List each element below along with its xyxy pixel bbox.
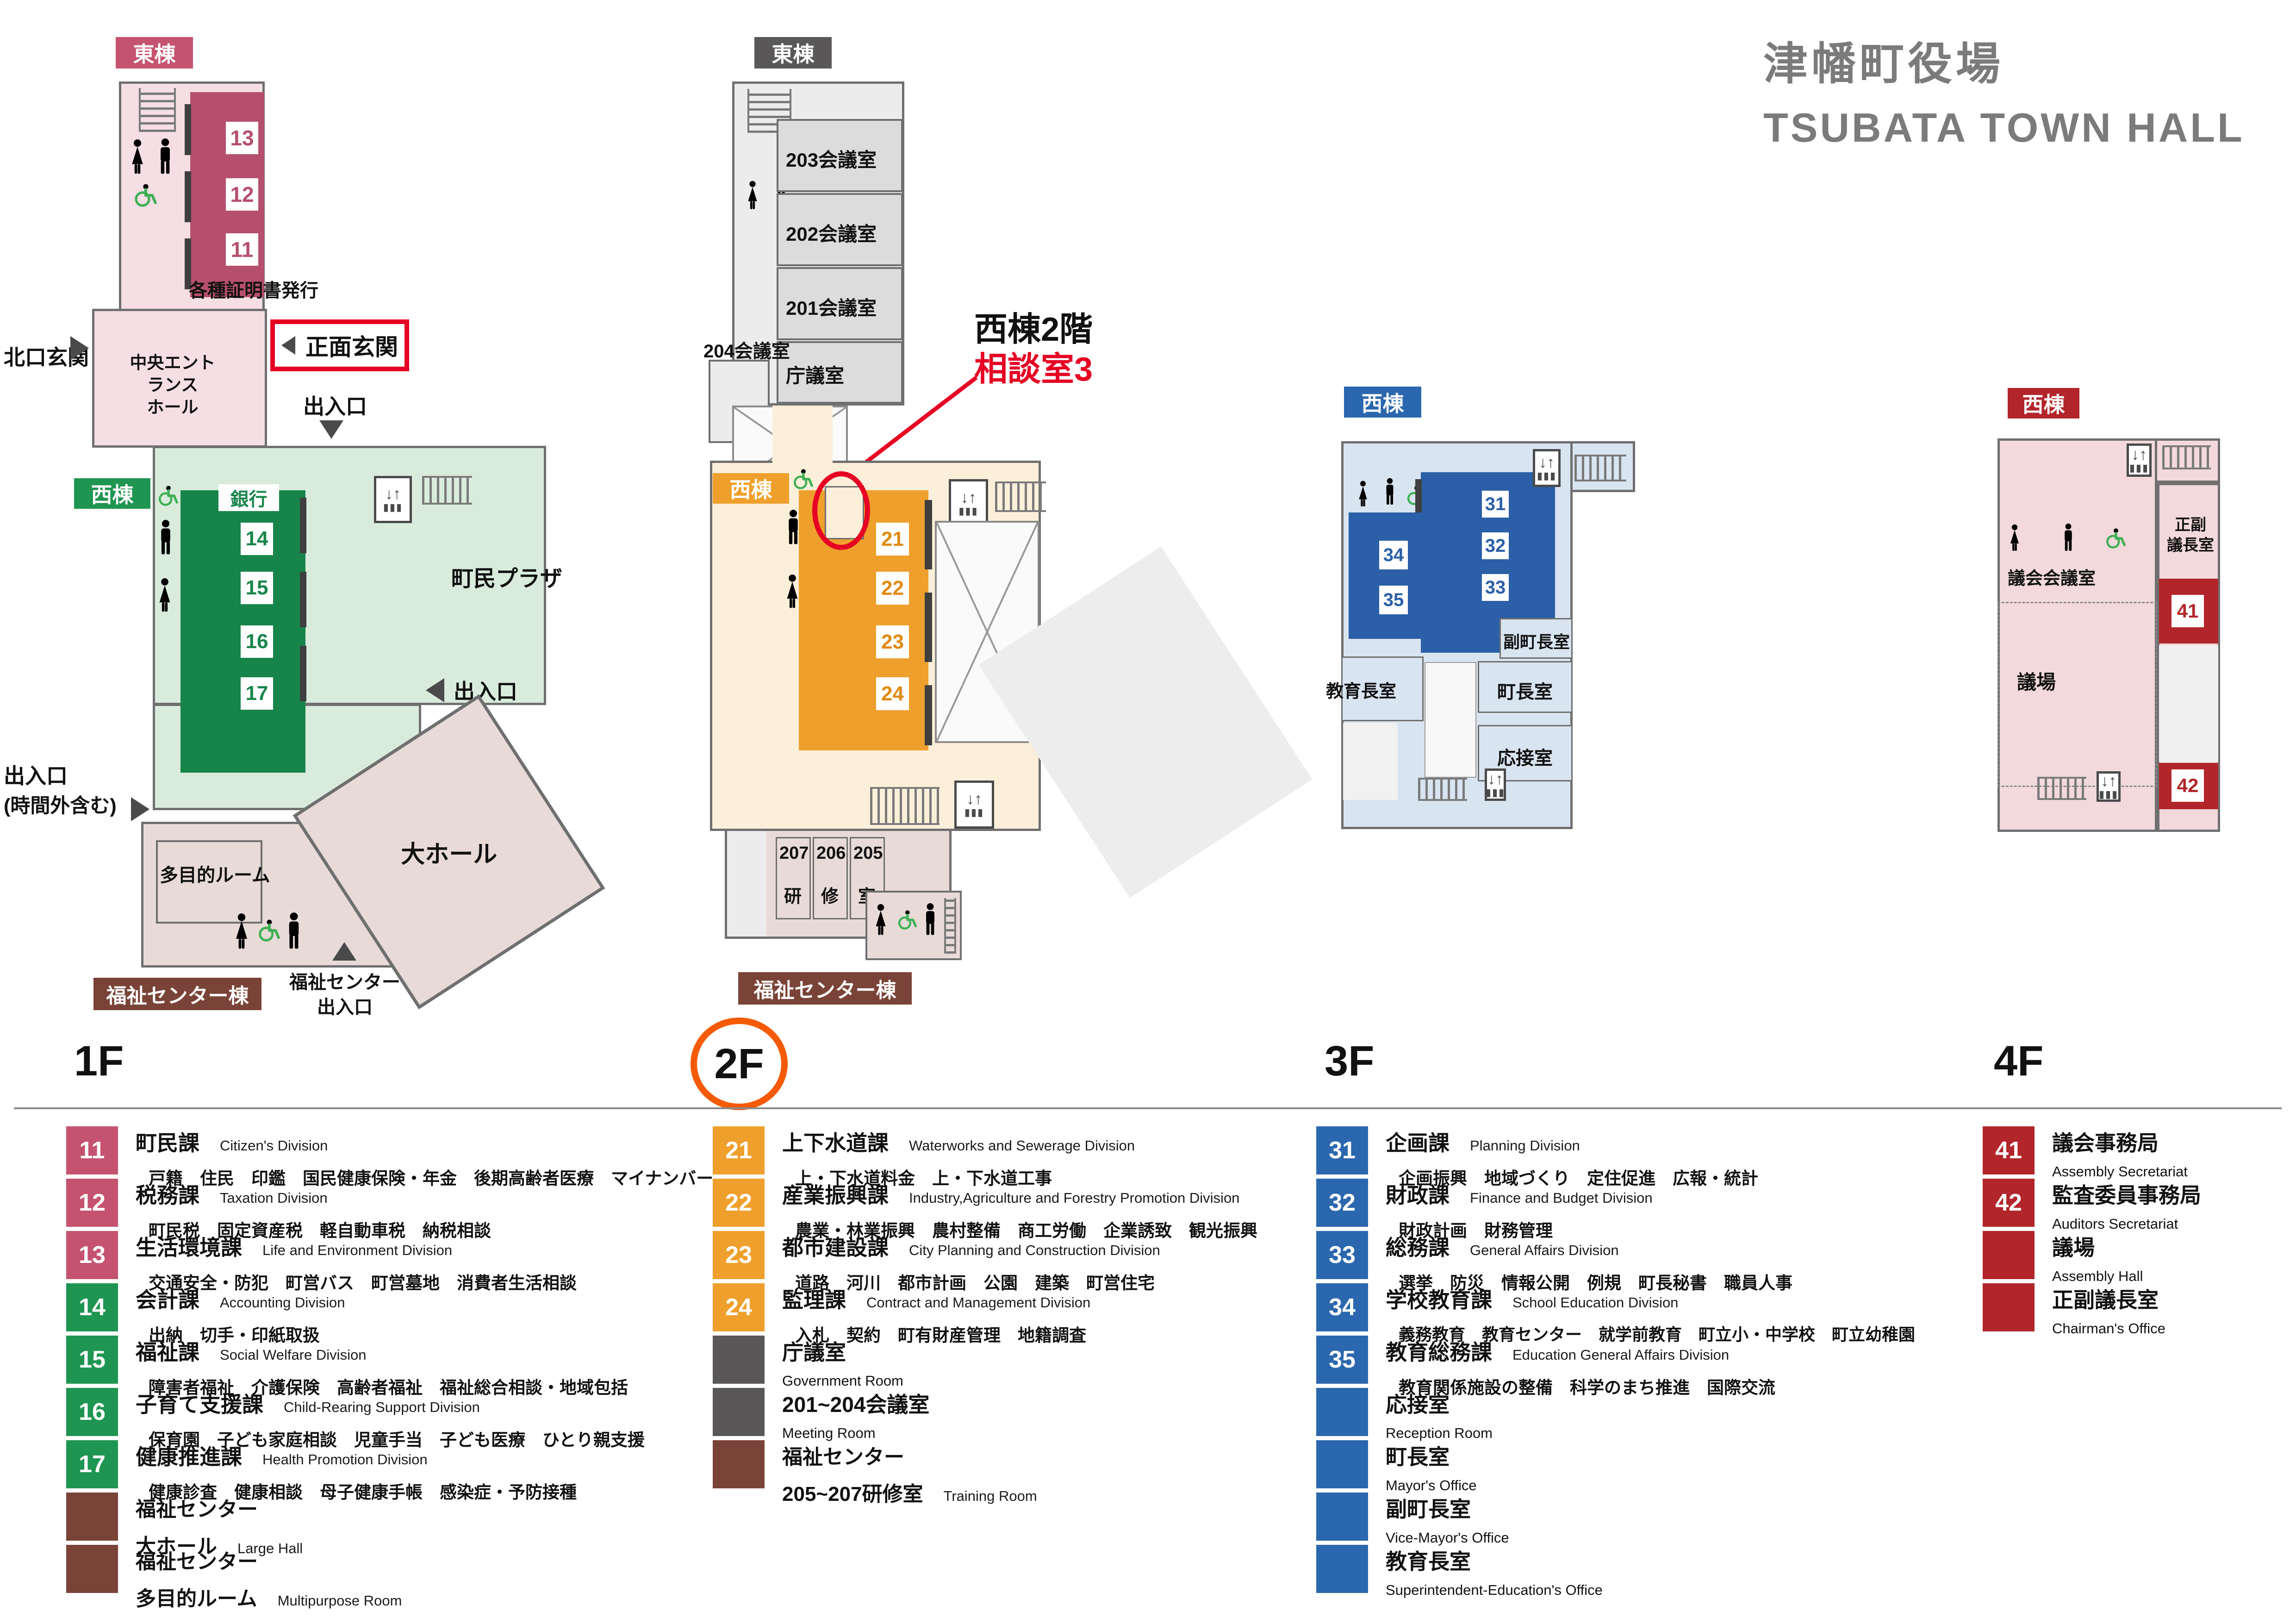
room-chip-21: 21 <box>876 523 909 556</box>
stairs-icon <box>139 88 176 132</box>
floor-map-1f: 東棟 13 12 11 各種証明書発行 北口玄関 正面玄関 中央エントランスホー… <box>0 28 648 1046</box>
government-room-label: 庁議室 <box>786 360 844 388</box>
exit-top-arrow-icon <box>319 420 343 439</box>
legend-chip-32: 32 <box>1316 1179 1368 1227</box>
legend-chip-assembly-hall <box>1983 1231 2035 1279</box>
certificates-label: 各種証明書発行 <box>189 275 318 302</box>
division-office-block-left-3f <box>1349 512 1441 639</box>
badge-west-wing-3f: 西棟 <box>1344 387 1421 418</box>
woman-icon <box>157 578 172 613</box>
stairs-icon <box>1418 778 1467 801</box>
room-chip-32: 32 <box>1482 532 1509 559</box>
floor-label-2f: 2F <box>714 1040 764 1088</box>
title-japanese: 津幡町役場 <box>1763 28 2245 92</box>
room-chip-31: 31 <box>1482 491 1509 518</box>
badge-welfare-center-1f: 福祉センター棟 <box>93 978 261 1010</box>
legend-chip-14: 14 <box>66 1283 118 1331</box>
room-chip-16: 16 <box>241 625 273 658</box>
exit-right-arrow-icon <box>426 678 444 702</box>
woman-icon <box>2009 524 2021 552</box>
reception-room-label: 応接室 <box>1497 743 1553 770</box>
superintendent-office-label: 教育長室 <box>1326 677 1396 702</box>
legend-chip-vice-mayor <box>1316 1493 1368 1541</box>
room-chip-23: 23 <box>876 625 909 658</box>
meeting-room-204-label: 204会議室 <box>703 336 790 363</box>
stairs-icon <box>422 476 472 505</box>
assembly-hall-label: 議場 <box>2017 667 2056 695</box>
main-entrance-arrow-icon <box>281 336 295 355</box>
legend-chip-12: 12 <box>66 1179 118 1227</box>
floor-label-4f: 4F <box>1994 1037 2043 1086</box>
welfare-entrance-label: 福祉センター出入口 <box>287 970 403 1020</box>
room-chip-35: 35 <box>1379 586 1408 614</box>
room-chip-11: 11 <box>226 233 258 266</box>
meeting-room-201-label: 201会議室 <box>786 293 877 321</box>
room-chip-22: 22 <box>876 572 909 605</box>
stairs-icon <box>995 481 1046 512</box>
legend-chip-welfare-multi <box>66 1545 118 1593</box>
bank-label: 銀行 <box>218 484 279 511</box>
man-icon <box>786 509 801 545</box>
woman-icon <box>130 139 145 175</box>
stairs-icon <box>870 787 940 825</box>
title-english: TSUBATA TOWN HALL <box>1763 104 2245 151</box>
badge-welfare-center-2f: 福祉センター棟 <box>738 972 912 1005</box>
legend-chip-23: 23 <box>713 1231 765 1279</box>
wheelchair-icon <box>2105 528 2126 549</box>
meeting-room-203-label: 203会議室 <box>786 144 877 173</box>
legend-divider <box>14 1107 2282 1109</box>
exit-right-label: 出入口 <box>454 675 517 706</box>
main-entrance-box: 正面玄関 <box>270 319 409 371</box>
elevator-icon <box>2127 443 2152 477</box>
exit-afterhours-label: 出入口(時間外含む) <box>4 759 117 818</box>
legend-chip-17: 17 <box>66 1440 118 1488</box>
room-chip-13: 13 <box>226 122 258 154</box>
counseling-room-highlight-circle <box>812 471 870 550</box>
floor-map-3f: 西棟 31 32 33 34 35 副町長室 町長室 応接室 教育長室 <box>1314 375 1680 843</box>
stairs-icon <box>2162 445 2211 469</box>
legend-chip-reception <box>1316 1388 1368 1436</box>
elevator-icon <box>1533 449 1561 487</box>
room-chip-12: 12 <box>226 178 258 211</box>
exit-afterhours-arrow-icon <box>131 797 149 821</box>
stairs-icon <box>2037 777 2086 800</box>
legend-chip-34: 34 <box>1316 1283 1368 1331</box>
legend-chip-35: 35 <box>1316 1336 1368 1384</box>
floor-map-4f: 西棟 正副議長室 41 42 議会会議室 議場 <box>1981 375 2296 843</box>
legend-chip-22: 22 <box>713 1179 765 1227</box>
legend-chip-13: 13 <box>66 1231 118 1279</box>
room-chip-17: 17 <box>241 677 273 710</box>
legend-chip-training-rooms <box>713 1440 765 1488</box>
man-icon <box>2062 523 2074 552</box>
stairs-icon <box>1574 455 1626 481</box>
wheelchair-icon <box>133 183 157 207</box>
woman-icon <box>785 574 800 609</box>
badge-west-wing-1f: 西棟 <box>74 478 150 509</box>
legend-chip-31: 31 <box>1316 1126 1368 1174</box>
central-hall-label: 中央エントランスホール <box>124 352 221 418</box>
legend-chip-chairman <box>1983 1283 2035 1331</box>
room-chip-14: 14 <box>241 523 273 555</box>
large-hall-label: 大ホール <box>401 835 497 869</box>
wheelchair-icon <box>792 468 814 490</box>
badge-west-wing-2f: 西棟 <box>713 473 789 504</box>
legend-chip-16: 16 <box>66 1388 118 1436</box>
badge-east-wing-2f: 東棟 <box>754 37 832 69</box>
legend-chip-welfare-hall <box>66 1493 118 1541</box>
elevator-icon <box>374 476 412 523</box>
legend-chip-33: 33 <box>1316 1231 1368 1279</box>
stairs-icon <box>944 898 956 954</box>
room-chip-24: 24 <box>876 677 909 710</box>
man-icon <box>1384 478 1396 506</box>
annotation-counseling-room3: 相談室3 <box>974 342 1093 390</box>
woman-icon <box>874 904 888 936</box>
wheelchair-icon <box>257 919 280 942</box>
woman-icon <box>1357 481 1369 507</box>
room-chip-41: 41 <box>2172 595 2204 627</box>
room-chip-34: 34 <box>1379 541 1408 569</box>
legend-chip-mayor <box>1316 1440 1368 1488</box>
room-chip-33: 33 <box>1482 574 1509 601</box>
wheelchair-icon <box>157 485 179 506</box>
legend-chip-government-room <box>713 1336 765 1384</box>
legend-chip-42: 42 <box>1983 1179 2035 1227</box>
tsubata-town-hall-floor-guide: 津幡町役場 TSUBATA TOWN HALL 東棟 13 12 11 各種証明… <box>0 0 2296 1624</box>
multipurpose-room-label: 多目的ルーム <box>160 860 270 887</box>
room-chip-42: 42 <box>2172 769 2204 802</box>
welfare-entrance-arrow-icon <box>332 942 356 961</box>
legend-chip-15: 15 <box>66 1336 118 1384</box>
north-entrance-arrow-icon <box>70 336 89 360</box>
vice-mayor-office-label: 副町長室 <box>1503 629 1570 653</box>
wheelchair-icon <box>897 910 917 930</box>
legend-chip-24: 24 <box>713 1283 765 1331</box>
woman-icon <box>746 181 759 210</box>
woman-icon <box>234 913 249 950</box>
badge-east-wing-1f: 東棟 <box>116 37 193 69</box>
exit-top-label: 出入口 <box>303 390 367 420</box>
man-icon <box>158 519 173 556</box>
legend-chip-41: 41 <box>1983 1126 2035 1174</box>
mayor-office-label: 町長室 <box>1497 677 1553 704</box>
room-chip-15: 15 <box>241 572 273 604</box>
floor-label-3f: 3F <box>1325 1037 1374 1086</box>
elevator-icon <box>1485 768 1506 801</box>
page-title: 津幡町役場 TSUBATA TOWN HALL <box>1763 28 2245 151</box>
elevator-icon <box>2097 771 2121 802</box>
assembly-meeting-room-label: 議会会議室 <box>2008 564 2096 589</box>
legend-chip-meeting-rooms <box>713 1388 765 1436</box>
badge-west-wing-4f: 西棟 <box>2008 388 2079 418</box>
man-icon <box>286 912 302 950</box>
current-floor-circle: 2F <box>691 1018 788 1110</box>
legend-chip-11: 11 <box>66 1126 118 1174</box>
legend-chip-superintendent <box>1316 1545 1368 1593</box>
floor-map-2f: 東棟 203会議室 202会議室 201会議室 庁議室 204会議室 西棟2階 … <box>671 28 1273 1093</box>
elevator-icon <box>954 781 994 829</box>
main-entrance-label: 正面玄関 <box>305 329 398 362</box>
man-icon <box>923 903 937 936</box>
meeting-room-202-label: 202会議室 <box>786 219 877 247</box>
legend-chip-21: 21 <box>713 1126 765 1174</box>
floor-label-1f: 1F <box>74 1037 124 1086</box>
man-icon <box>157 138 173 175</box>
chairman-office-label: 正副議長室 <box>2165 515 2216 556</box>
plaza-label: 町民プラザ <box>451 560 562 593</box>
